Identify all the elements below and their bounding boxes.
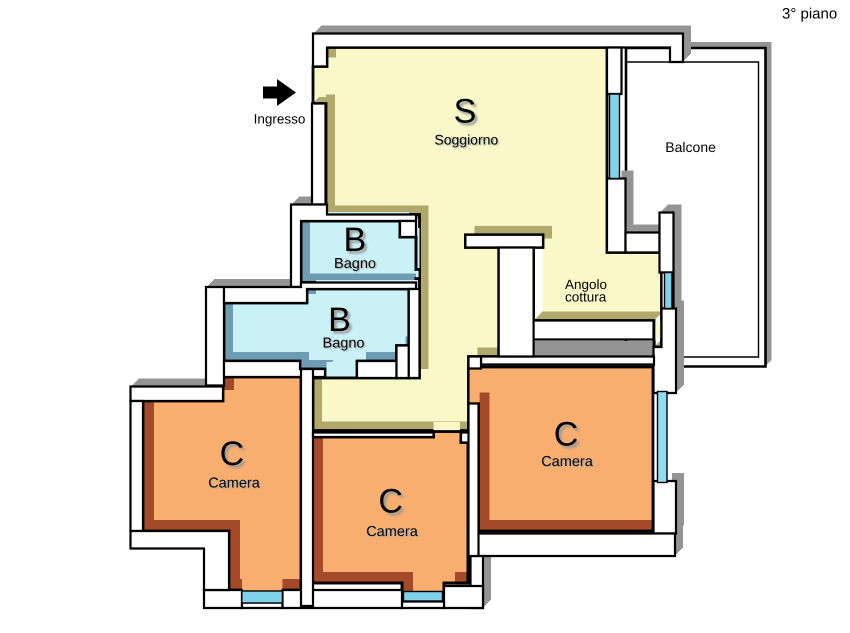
svg-text:Balcone: Balcone — [665, 139, 716, 155]
svg-text:C: C — [220, 435, 245, 473]
svg-text:B: B — [328, 301, 351, 339]
svg-text:Camera: Camera — [366, 524, 419, 540]
svg-text:3° piano: 3° piano — [782, 6, 837, 23]
svg-text:cottura: cottura — [565, 290, 607, 305]
svg-text:B: B — [344, 221, 367, 259]
svg-text:Bagno: Bagno — [334, 256, 376, 272]
svg-text:C: C — [554, 416, 579, 454]
svg-text:Ingresso: Ingresso — [254, 112, 306, 127]
svg-text:Soggiorno: Soggiorno — [434, 132, 498, 148]
svg-text:C: C — [378, 483, 403, 521]
svg-text:Camera: Camera — [208, 476, 261, 492]
svg-text:Bagno: Bagno — [323, 336, 365, 352]
svg-text:S: S — [454, 93, 477, 131]
svg-text:Camera: Camera — [541, 454, 594, 470]
